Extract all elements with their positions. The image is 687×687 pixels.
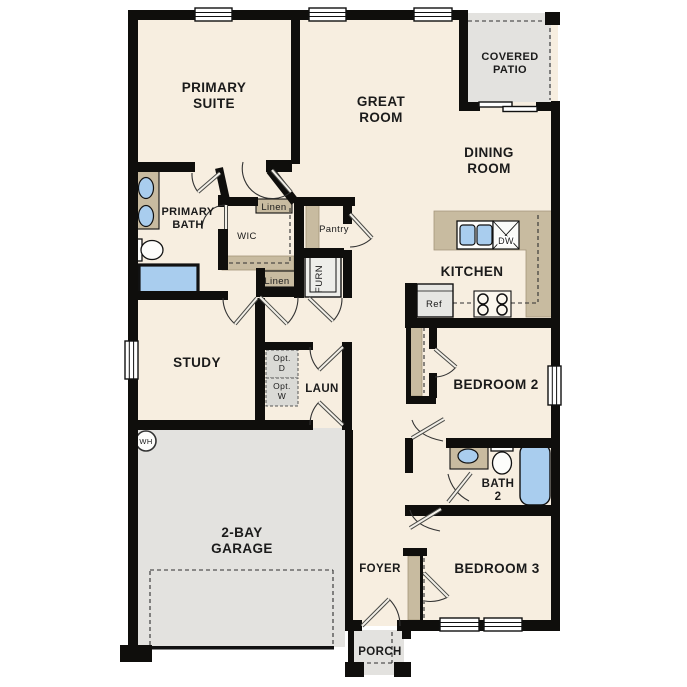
label-porch: PORCH bbox=[358, 646, 402, 658]
primary-sink-1-icon bbox=[139, 178, 154, 199]
label-linen-lower: Linen bbox=[264, 276, 289, 287]
kitchen-sink-basin-2-icon bbox=[477, 225, 492, 245]
bedroom2-closet-shelf bbox=[410, 324, 422, 396]
label-pantry: Pantry bbox=[319, 224, 349, 235]
primary-sink-2-icon bbox=[139, 206, 154, 227]
label-refrigerator: Ref bbox=[426, 299, 442, 310]
garage-door-line bbox=[150, 646, 334, 650]
label-dishwasher: DW bbox=[498, 236, 514, 246]
bath2-toilet-icon bbox=[493, 452, 512, 474]
window-icon bbox=[195, 8, 232, 21]
window-icon bbox=[125, 341, 138, 379]
floorplan-page: PRIMARYSUITEGREATROOMCOVEREDPATIODININGR… bbox=[0, 0, 687, 687]
pantry-shelf bbox=[306, 201, 319, 251]
kitchen-sink-basin-1-icon bbox=[460, 225, 475, 245]
label-water-heater: WH bbox=[139, 437, 152, 446]
label-great-room: GREATROOM bbox=[357, 94, 406, 125]
window-icon bbox=[309, 8, 346, 21]
label-bedroom-2: BEDROOM 2 bbox=[453, 377, 538, 392]
label-study: STUDY bbox=[173, 355, 221, 370]
primary-toilet-icon bbox=[141, 241, 163, 260]
label-foyer: FOYER bbox=[359, 563, 401, 575]
floorplan-drawing: PRIMARYSUITEGREATROOMCOVEREDPATIODININGR… bbox=[0, 0, 687, 687]
label-furnace: FURN bbox=[314, 265, 325, 293]
window-icon bbox=[484, 618, 522, 631]
label-dining-room: DININGROOM bbox=[464, 145, 514, 176]
label-laundry: LAUN bbox=[305, 383, 339, 395]
label-wic: WIC bbox=[237, 231, 257, 242]
bath2-tub-icon bbox=[520, 444, 550, 505]
bath2-sink-icon bbox=[458, 449, 478, 463]
label-kitchen: KITCHEN bbox=[441, 264, 504, 279]
bedroom3-closet-shelf bbox=[408, 556, 421, 620]
window-icon bbox=[548, 366, 561, 405]
window-icon bbox=[414, 8, 452, 21]
label-bedroom-3: BEDROOM 3 bbox=[454, 561, 539, 576]
window-icon bbox=[440, 618, 479, 631]
label-linen-upper: Linen bbox=[261, 202, 286, 213]
